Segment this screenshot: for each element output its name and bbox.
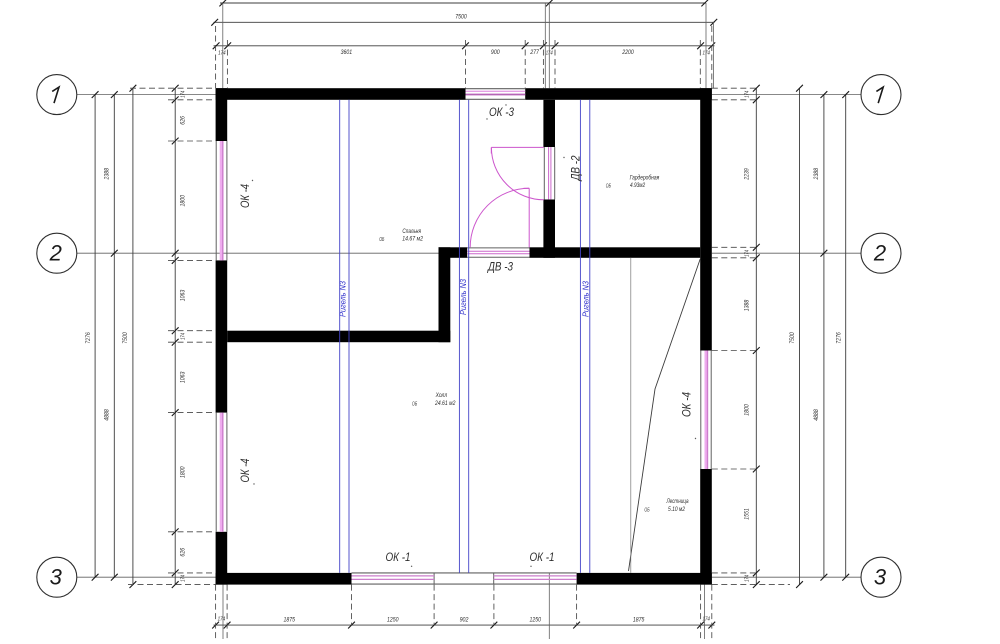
svg-text:ОК -3: ОК -3 bbox=[489, 105, 514, 119]
svg-text:7500: 7500 bbox=[122, 332, 129, 344]
svg-text:7276: 7276 bbox=[836, 332, 843, 344]
svg-text:ОК -4: ОК -4 bbox=[238, 184, 252, 208]
svg-text:ОК -4: ОК -4 bbox=[238, 458, 252, 482]
svg-text:4.93м2: 4.93м2 bbox=[630, 182, 646, 189]
svg-text:ОБ: ОБ bbox=[606, 184, 611, 190]
svg-text:1800: 1800 bbox=[745, 404, 751, 416]
svg-text:1551: 1551 bbox=[745, 508, 751, 520]
svg-text:1875: 1875 bbox=[284, 616, 296, 623]
svg-text:174: 174 bbox=[745, 91, 751, 98]
svg-text:2388: 2388 bbox=[813, 168, 820, 181]
svg-text:5.10 м2: 5.10 м2 bbox=[668, 506, 685, 513]
svg-text:ОБ: ОБ bbox=[412, 401, 417, 407]
svg-text:4888: 4888 bbox=[104, 409, 111, 421]
svg-text:1250: 1250 bbox=[387, 616, 399, 623]
svg-text:174: 174 bbox=[181, 333, 187, 340]
svg-text:1063: 1063 bbox=[181, 371, 187, 383]
svg-text:626: 626 bbox=[181, 115, 187, 124]
svg-text:Спальня: Спальня bbox=[402, 228, 421, 235]
svg-text:2: 2 bbox=[49, 241, 62, 266]
svg-text:3: 3 bbox=[50, 565, 63, 590]
svg-text:Ригель N3: Ригель N3 bbox=[339, 280, 348, 317]
svg-text:1875: 1875 bbox=[633, 616, 645, 623]
svg-text:626: 626 bbox=[181, 547, 187, 556]
svg-text:4888: 4888 bbox=[813, 409, 820, 421]
svg-text:174: 174 bbox=[181, 575, 187, 582]
svg-text:277: 277 bbox=[529, 49, 539, 56]
svg-text:2: 2 bbox=[873, 241, 886, 266]
svg-text:1800: 1800 bbox=[181, 466, 187, 478]
svg-text:1388: 1388 bbox=[745, 299, 751, 311]
svg-text:Ригель N3: Ригель N3 bbox=[582, 280, 591, 317]
svg-text:14.67 м2: 14.67 м2 bbox=[402, 236, 423, 243]
svg-text:900: 900 bbox=[491, 49, 500, 56]
svg-text:174: 174 bbox=[745, 250, 751, 257]
svg-text:ОБ: ОБ bbox=[379, 237, 384, 243]
svg-text:1063: 1063 bbox=[181, 289, 187, 301]
svg-text:1800: 1800 bbox=[181, 194, 187, 206]
svg-text:24.61 м2: 24.61 м2 bbox=[434, 400, 456, 407]
svg-text:Лестница: Лестница bbox=[666, 498, 689, 505]
svg-text:7500: 7500 bbox=[789, 332, 796, 344]
svg-text:3: 3 bbox=[874, 565, 887, 590]
svg-text:7500: 7500 bbox=[455, 14, 467, 21]
svg-text:174: 174 bbox=[702, 617, 710, 623]
svg-text:1250: 1250 bbox=[530, 616, 542, 623]
svg-text:ДВ -2: ДВ -2 bbox=[569, 155, 583, 182]
svg-text:174: 174 bbox=[218, 617, 226, 623]
svg-text:174: 174 bbox=[218, 51, 226, 57]
svg-text:ОК -4: ОК -4 bbox=[680, 392, 694, 417]
svg-text:2388: 2388 bbox=[104, 168, 111, 181]
svg-text:ДВ -3: ДВ -3 bbox=[486, 260, 513, 274]
svg-text:902: 902 bbox=[460, 616, 469, 623]
svg-text:174: 174 bbox=[181, 91, 187, 98]
svg-text:Гардеробная: Гардеробная bbox=[630, 174, 660, 182]
svg-text:2200: 2200 bbox=[621, 49, 634, 56]
svg-text:Ригель N3: Ригель N3 bbox=[459, 278, 468, 315]
svg-text:Холл: Холл bbox=[435, 392, 448, 399]
svg-text:ОК -1: ОК -1 bbox=[530, 550, 555, 564]
svg-text:ОБ: ОБ bbox=[644, 507, 649, 513]
svg-text:174: 174 bbox=[745, 575, 751, 582]
svg-text:3601: 3601 bbox=[341, 49, 353, 56]
svg-text:2239: 2239 bbox=[745, 168, 751, 181]
svg-text:ОК -1: ОК -1 bbox=[386, 550, 411, 564]
svg-text:7276: 7276 bbox=[85, 332, 92, 344]
